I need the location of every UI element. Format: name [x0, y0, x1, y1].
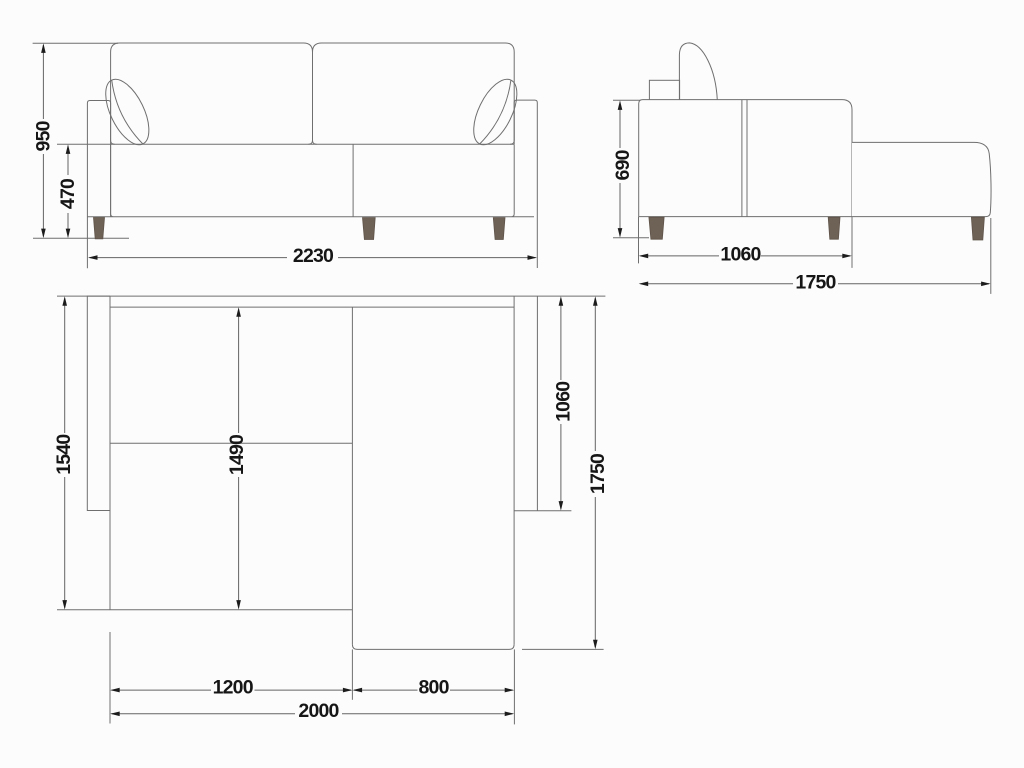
svg-text:1750: 1750: [587, 453, 609, 494]
svg-text:1750: 1750: [795, 272, 836, 294]
svg-text:950: 950: [33, 120, 55, 151]
svg-text:1060: 1060: [553, 381, 575, 422]
svg-text:800: 800: [419, 676, 450, 698]
svg-text:2000: 2000: [298, 700, 339, 722]
svg-text:1540: 1540: [53, 434, 75, 475]
svg-text:1060: 1060: [720, 244, 761, 266]
svg-text:2230: 2230: [293, 245, 334, 267]
svg-text:1490: 1490: [226, 434, 248, 475]
svg-text:690: 690: [612, 149, 634, 180]
svg-text:470: 470: [57, 178, 79, 209]
svg-text:1200: 1200: [213, 676, 254, 698]
